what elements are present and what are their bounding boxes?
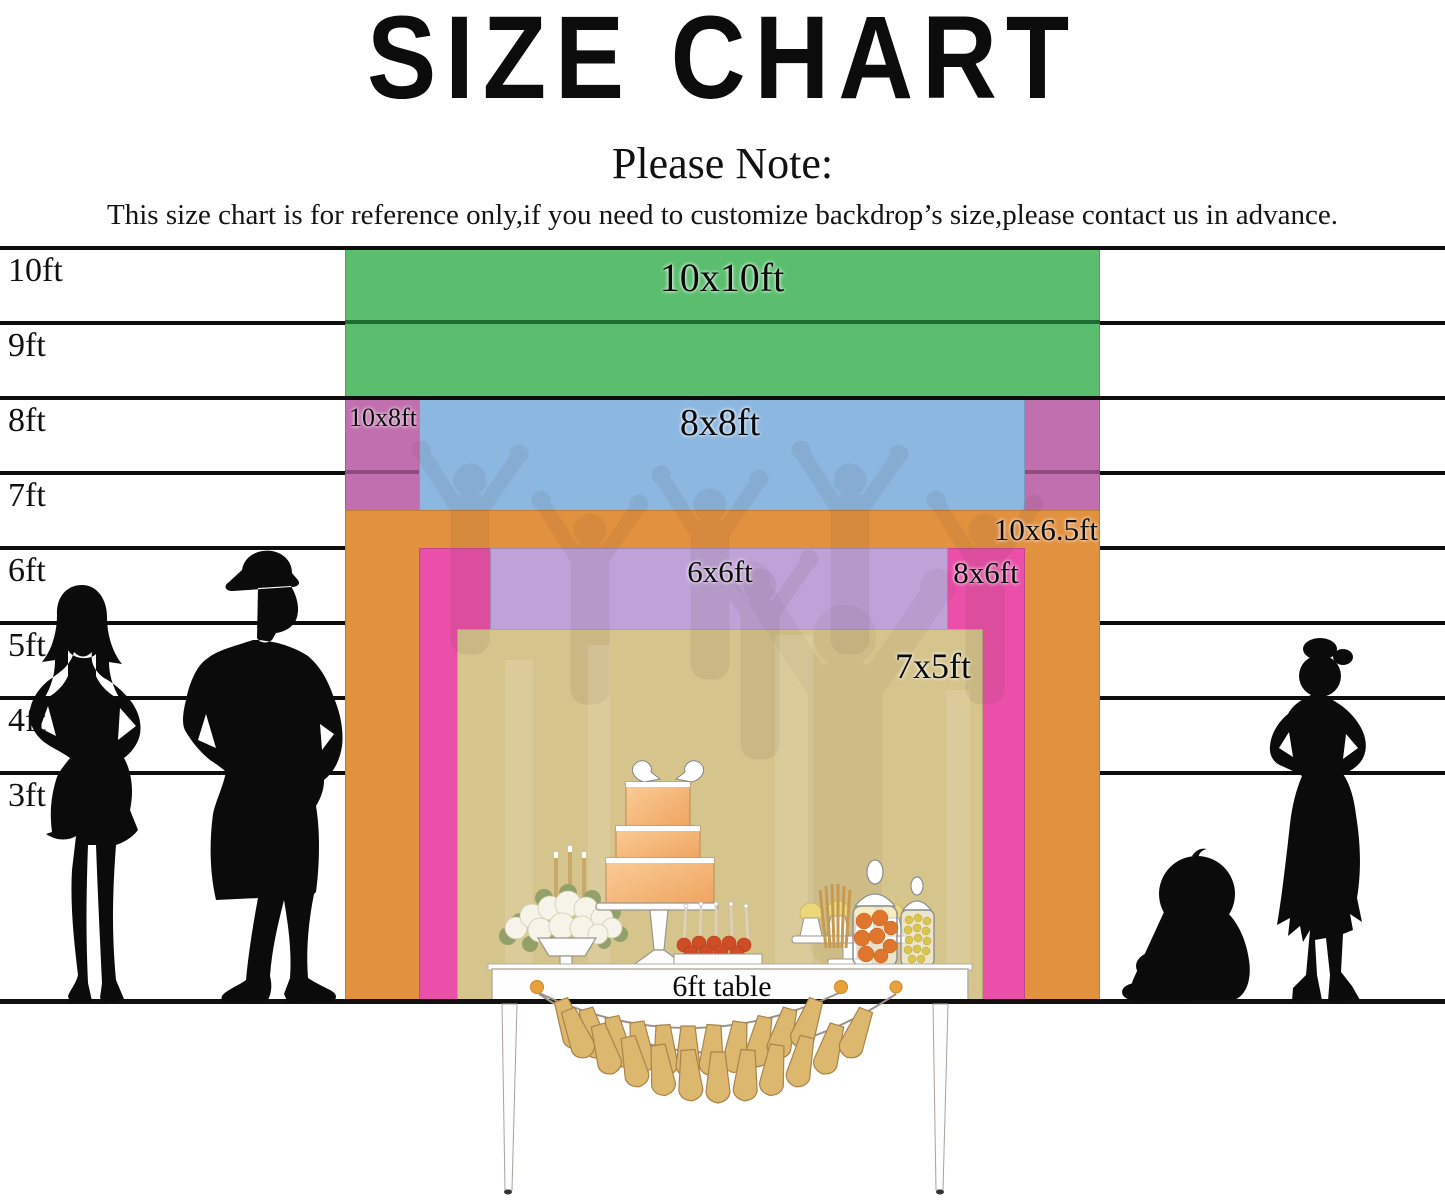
cake-pops-icon — [674, 902, 762, 966]
size-label-6x6ft: 6x6ft — [520, 554, 920, 590]
table-size-label: 6ft table — [572, 970, 872, 1004]
size-label-10x10ft: 10x10ft — [522, 254, 922, 301]
size-label-7x5ft: 7x5ft — [833, 645, 1033, 687]
size-label-8x8ft: 8x8ft — [520, 401, 920, 445]
size-chart-infographic: SIZE CHART Please Note: This size chart … — [0, 0, 1445, 1202]
candy-jar-orange-icon — [853, 860, 898, 966]
candy-jar-yellow-icon — [901, 877, 934, 966]
size-label-10x8ft: 10x8ft — [345, 403, 421, 433]
size-label-8x6ft: 8x6ft — [941, 555, 1031, 591]
dessert-table-scene — [0, 0, 1445, 1202]
size-label-10x6-5ft: 10x6.5ft — [900, 512, 1098, 548]
